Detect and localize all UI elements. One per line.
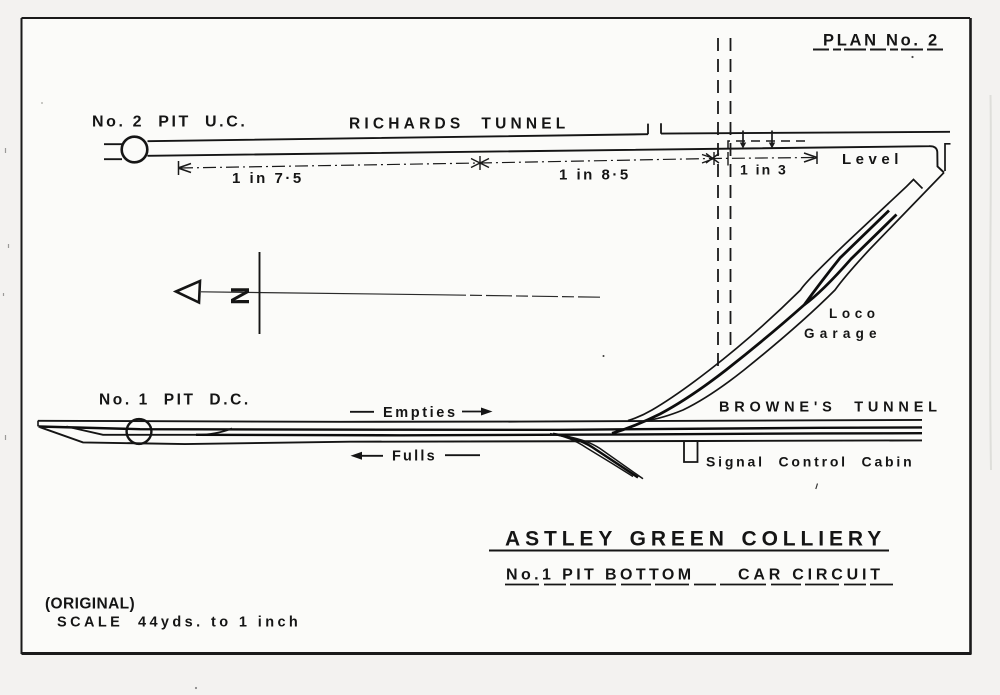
svg-text:Loco: Loco [829,306,880,321]
svg-text:1 in 3: 1 in 3 [740,162,788,178]
svg-text:No. 2 PIT U.C.: No. 2 PIT U.C. [92,114,247,131]
svg-text:No.1 PIT BOTTOM: No.1 PIT BOTTOM [506,567,694,584]
svg-text:Garage: Garage [804,326,882,341]
svg-text:1 in 7·5: 1 in 7·5 [232,170,304,187]
svg-text:ASTLEY GREEN COLLIERY: ASTLEY GREEN COLLIERY [505,528,886,551]
svg-text:CAR CIRCUIT: CAR CIRCUIT [738,567,884,584]
svg-text:PLAN No. 2: PLAN No. 2 [823,32,940,50]
svg-text:Level: Level [842,151,903,168]
svg-text:Empties: Empties [383,405,458,421]
svg-text:1 in 8·5: 1 in 8·5 [559,167,631,184]
svg-text:(ORIGINAL): (ORIGINAL) [45,596,135,613]
svg-text:SCALE 44yds. to 1 inch: SCALE 44yds. to 1 inch [57,615,301,631]
svg-text:N: N [227,287,255,305]
svg-text:RICHARDS TUNNEL: RICHARDS TUNNEL [349,116,569,133]
svg-text:BROWNE'S TUNNEL: BROWNE'S TUNNEL [719,400,942,416]
svg-text:No. 1 PIT D.C.: No. 1 PIT D.C. [99,392,251,409]
svg-text:Fulls: Fulls [392,449,437,465]
svg-text:Signal Control Cabin: Signal Control Cabin [706,454,914,470]
